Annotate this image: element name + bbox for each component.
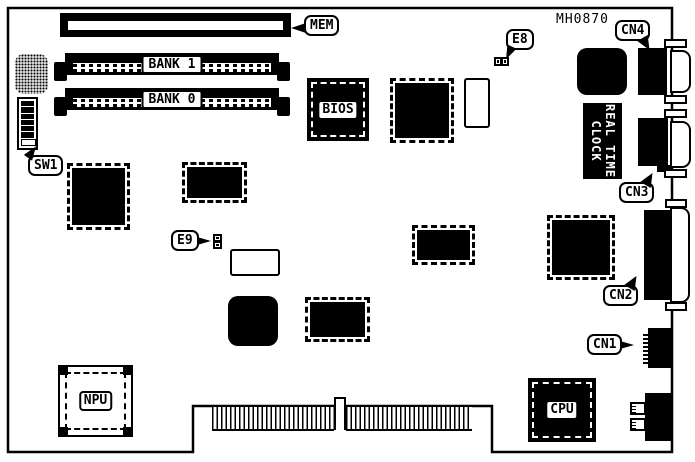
dotted-component: [15, 54, 48, 94]
slot-latch: [54, 97, 67, 116]
oscillator-component: [464, 78, 490, 128]
real-time-clock-text: REAL TIME CLOCK: [589, 103, 617, 179]
bracket-tab: [664, 95, 687, 104]
dip-cell: [21, 107, 34, 112]
cn1-connector: [648, 328, 672, 368]
cn4-callout: CN4: [615, 20, 650, 41]
cn2-dsub-shell: [670, 207, 690, 303]
bracket-tab: [665, 302, 687, 311]
slot-latch: [54, 62, 67, 81]
sw1-callout-label: SW1: [34, 158, 57, 173]
rtc-text-line1: REAL TIME: [603, 103, 617, 179]
cn4-callout-label: CN4: [621, 23, 644, 38]
rounded-chip: [577, 48, 627, 95]
qfp-chip: [305, 297, 370, 342]
bios-label: BIOS: [317, 100, 358, 120]
bank1-label: BANK 1: [142, 55, 203, 74]
dip-cell: [21, 120, 34, 125]
cn3-callout-label: CN3: [625, 185, 648, 200]
real-time-clock-module: REAL TIME CLOCK: [583, 103, 622, 179]
simm-slot-bank1: BANK 1: [65, 53, 279, 75]
e9-jumper: [213, 234, 222, 249]
e9-callout-tail: [197, 237, 211, 245]
bracket-tab: [664, 169, 687, 178]
cn1-callout-label: CN1: [593, 337, 616, 352]
memory-slot: [60, 13, 291, 37]
e9-callout: E9: [171, 230, 199, 251]
simm-slot-bank0: BANK 0: [65, 88, 279, 110]
cn1-callout: CN1: [587, 334, 622, 355]
qfp-chip: [182, 162, 247, 203]
dip-cell: [21, 101, 34, 106]
qfp-chip: [67, 163, 130, 230]
keyboard-connector: [645, 393, 673, 441]
cn1-callout-tail: [620, 341, 634, 349]
dip-cell: [21, 132, 34, 137]
cn2-callout-label: CN2: [609, 288, 632, 303]
cn4-connector: [638, 48, 667, 95]
cpu-label: CPU: [545, 400, 578, 420]
edge-connector-fingers: [212, 407, 334, 431]
connector-plug: [630, 418, 646, 431]
qfp-chip: [412, 225, 475, 265]
bios-socket: BIOS: [307, 78, 369, 141]
cn3-dsub-shell: [670, 121, 691, 168]
cpu-socket: CPU: [528, 378, 596, 442]
e8-callout: E8: [506, 29, 534, 50]
cn2-callout: CN2: [603, 285, 638, 306]
slot-latch: [277, 97, 290, 116]
part-number-text: MH0870: [556, 12, 609, 27]
cn3-connector: [638, 118, 668, 166]
bracket-tab: [664, 39, 687, 48]
npu-label: NPU: [79, 391, 112, 411]
mem-callout-label: MEM: [310, 18, 333, 33]
sw1-dip-switch: [17, 97, 38, 150]
npu-socket: NPU: [58, 365, 133, 437]
mem-callout: MEM: [304, 15, 339, 36]
connector-plug: [630, 402, 646, 415]
cn2-connector: [644, 210, 670, 300]
oscillator-component: [230, 249, 280, 276]
dip-cell: [21, 114, 34, 119]
qfp-chip: [390, 78, 454, 143]
rtc-text-line2: CLOCK: [589, 103, 603, 179]
e9-callout-label: E9: [177, 233, 193, 248]
edge-connector-key: [334, 397, 346, 430]
qfp-chip: [547, 215, 615, 280]
motherboard-diagram: MH0870 MEM SW1 BANK 1 BANK 0 BIOS: [0, 0, 695, 462]
cn3-callout: CN3: [619, 182, 654, 203]
memory-slot-stripe: [68, 21, 283, 30]
mem-callout-tail: [291, 23, 306, 33]
edge-connector-fingers: [346, 407, 472, 431]
bracket-tab: [664, 109, 687, 118]
slot-latch: [277, 62, 290, 81]
sw1-callout: SW1: [28, 155, 63, 176]
e8-callout-label: E8: [512, 32, 528, 47]
bank0-label: BANK 0: [142, 90, 203, 109]
dip-cell: [21, 126, 34, 131]
rounded-chip: [228, 296, 278, 346]
cn4-dsub-shell: [670, 50, 691, 93]
